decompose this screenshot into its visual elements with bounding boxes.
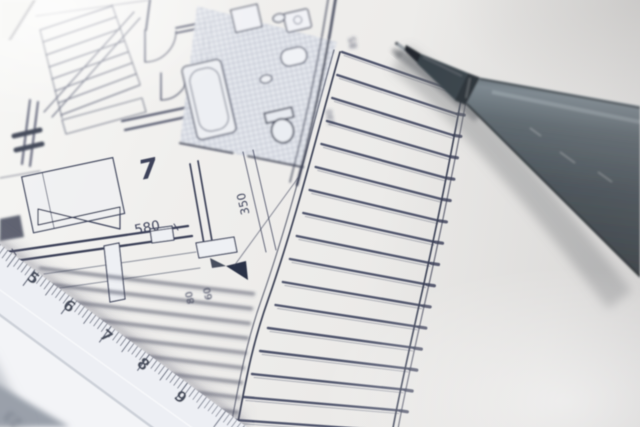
section-marker-wedge [210, 258, 226, 268]
drawn-line [268, 328, 413, 348]
drawn-line [436, 242, 443, 243]
bed [22, 158, 125, 233]
drawn-line [450, 157, 457, 158]
pen-tip-point [395, 42, 398, 45]
drawn-line [262, 354, 408, 372]
drawn-line [285, 285, 422, 308]
drawn-line [290, 259, 426, 284]
drawn-line [235, 420, 394, 427]
drawn-line [244, 397, 399, 410]
drawn-line [299, 239, 430, 266]
dimension-350: 350 [234, 192, 253, 217]
floor-plan-photo: 7 580 80 60 350 [0, 0, 640, 427]
dimension-180: 180 [325, 108, 338, 126]
drawn-line [278, 308, 418, 329]
drawn-line [276, 305, 418, 327]
door-jamb-b [196, 237, 237, 258]
room-number-label: 7 [136, 153, 161, 187]
drawn-line [414, 348, 421, 349]
drawn-line [410, 369, 417, 370]
wall-room-right [190, 161, 212, 244]
drawn-line [323, 147, 445, 181]
stairs [0, 0, 150, 178]
drawn-line [432, 263, 439, 264]
photo-scene: 7 580 80 60 350 [0, 0, 640, 427]
drawn-line [303, 213, 434, 242]
pen-barrel [466, 78, 640, 279]
bathroom [180, 0, 337, 185]
drawn-line [270, 331, 413, 351]
drawn-line [252, 374, 404, 390]
drawn-line [310, 190, 438, 221]
door-arc [145, 31, 176, 62]
drawn-line [447, 178, 454, 179]
drawn-line [254, 377, 404, 392]
construction-line [234, 178, 298, 266]
dimension-85: 85 [347, 36, 360, 50]
window-symbol [14, 130, 42, 150]
drawn-line [246, 400, 399, 413]
drain-fixture-2 [272, 13, 285, 23]
cabinet [283, 9, 312, 33]
drawn-line [283, 282, 422, 306]
drawn-line [260, 351, 408, 369]
drawn-line [292, 262, 426, 287]
section-marker-triangle [226, 261, 248, 280]
